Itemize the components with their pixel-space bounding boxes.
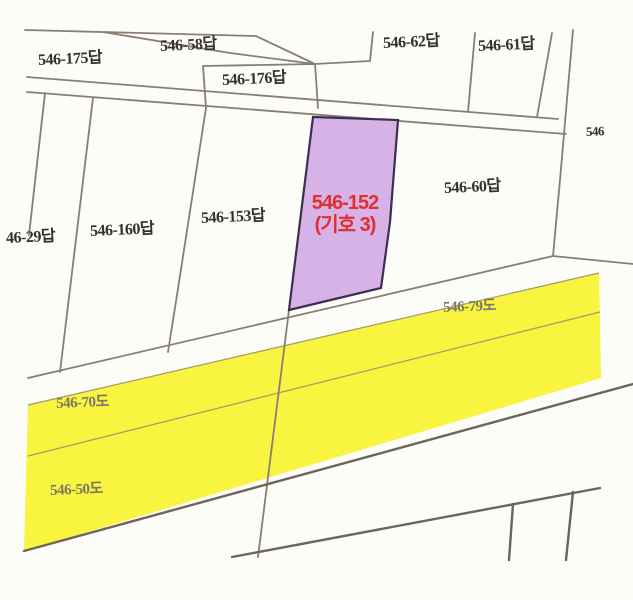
- parcel-label-546-175: 546-175답: [37, 43, 102, 70]
- parcel-label-546-160: 546-160답: [89, 214, 154, 241]
- cadastral-map: 546-175답 546-58답 546-176답 546-62답 546-61…: [0, 0, 633, 600]
- road-label-546-70: 546-70도: [56, 390, 109, 413]
- highlight-label: 546-152 (기호 3): [296, 192, 394, 236]
- parcel-label-546-60: 546-60답: [443, 172, 501, 198]
- road-shape: [24, 273, 601, 551]
- parcel-label-546-edge: 546: [586, 123, 605, 140]
- parcel-label-546-153: 546-153답: [200, 201, 265, 228]
- parcel-label-46-29: 46-29답: [5, 222, 55, 248]
- parcel-label-546-58: 546-58답: [159, 30, 217, 56]
- parcel-label-546-176: 546-176답: [221, 63, 286, 90]
- road-label-546-79: 546-79도: [443, 294, 496, 317]
- highlight-label-line1: 546-152: [296, 192, 394, 214]
- map-drawing: [0, 0, 633, 600]
- parcel-label-546-61: 546-61답: [477, 30, 535, 56]
- road-label-546-50: 546-50도: [50, 477, 103, 500]
- highlight-label-line2: (기호 3): [296, 214, 394, 236]
- parcel-label-546-62: 546-62답: [382, 27, 440, 53]
